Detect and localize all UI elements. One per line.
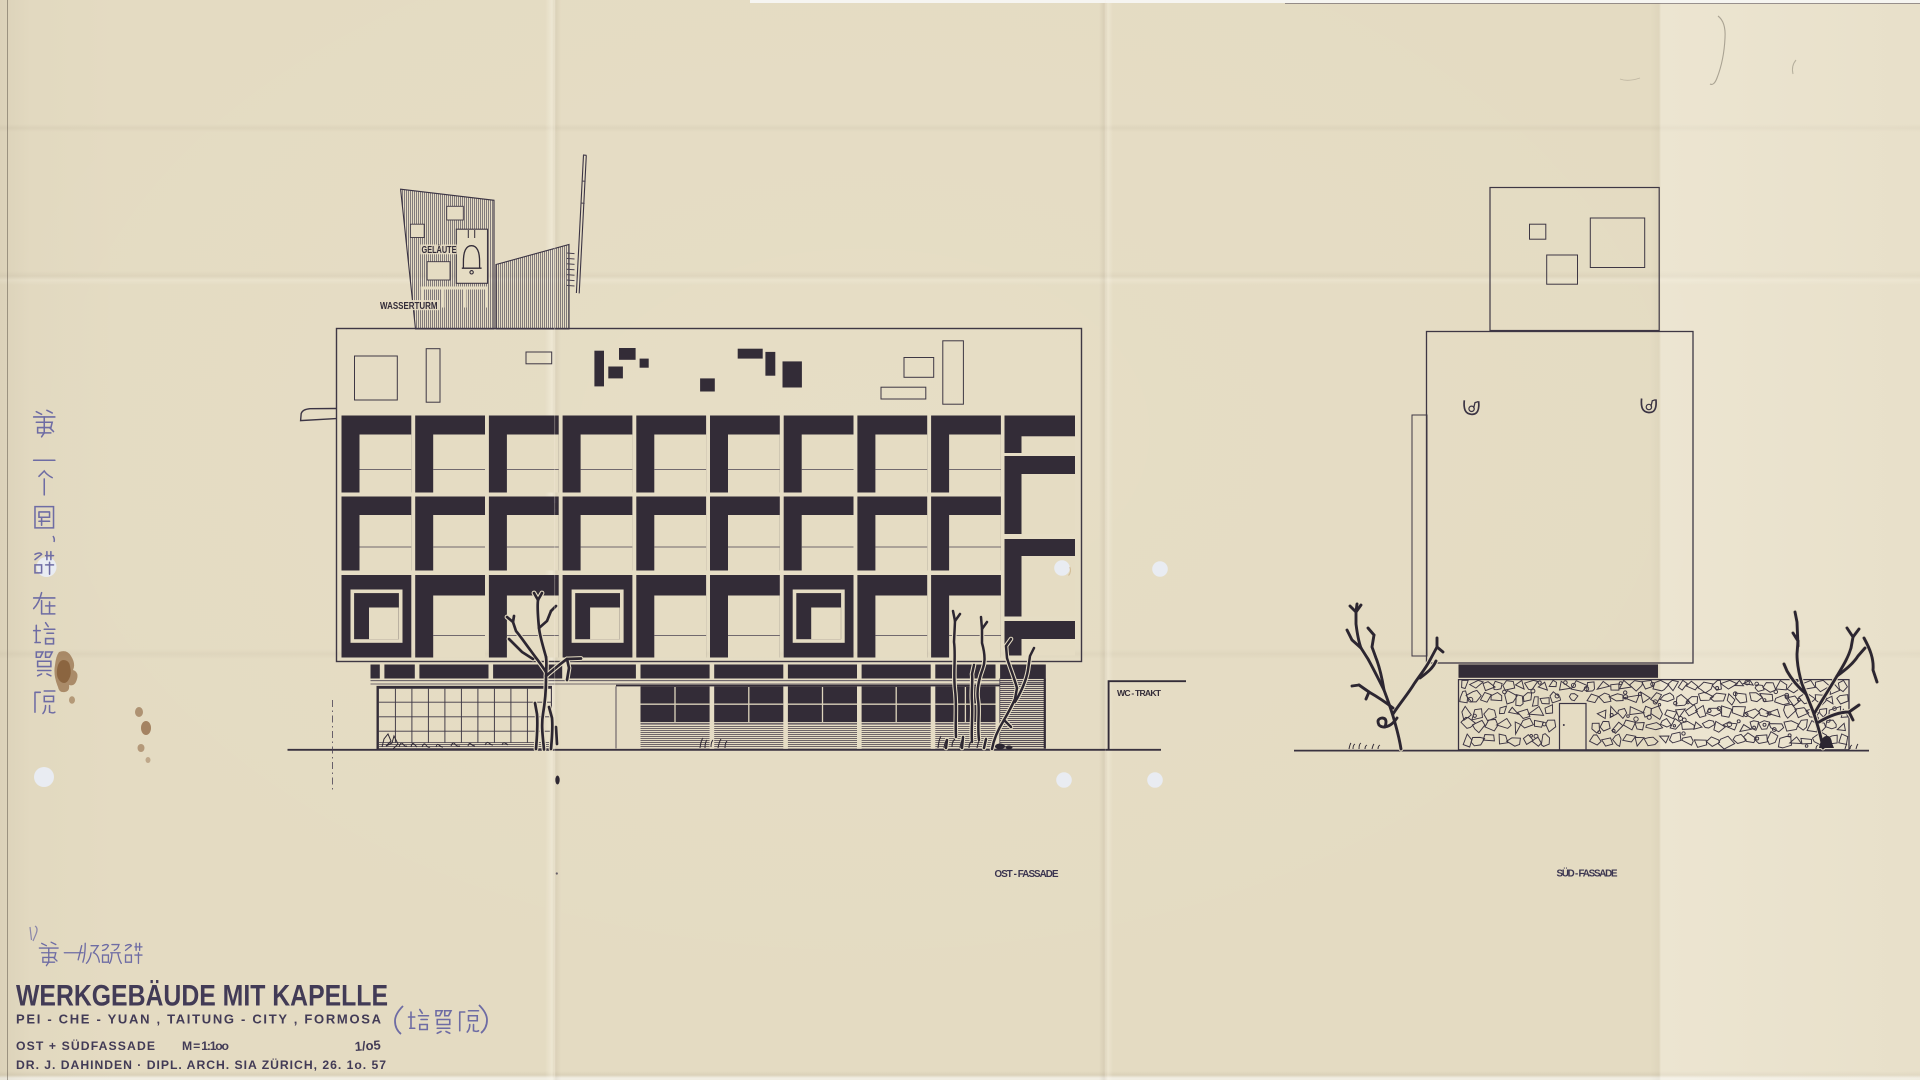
svg-text:WASSERTURM: WASSERTURM bbox=[380, 301, 438, 312]
svg-text:WERKGEBÄUDE MIT KAPELLE: WERKGEBÄUDE MIT KAPELLE bbox=[16, 980, 388, 1013]
svg-text:GELÄUTE: GELÄUTE bbox=[422, 243, 457, 256]
svg-text:DR. J. DAHINDEN · DIPL. ARCH.: DR. J. DAHINDEN · DIPL. ARCH. SIA ZÜRICH… bbox=[16, 1057, 386, 1072]
svg-text:WC - TRAKT: WC - TRAKT bbox=[1117, 688, 1162, 698]
svg-text:PEI - CHE - YUAN , TAITUNG - C: PEI - CHE - YUAN , TAITUNG - CITY , FORM… bbox=[16, 1012, 382, 1027]
svg-text:SÜD - FASSADE: SÜD - FASSADE bbox=[1557, 869, 1618, 880]
svg-text:M = 1:1oo: M = 1:1oo bbox=[182, 1039, 229, 1053]
svg-text:OST - FASSADE: OST - FASSADE bbox=[995, 869, 1059, 880]
svg-text:OST + SÜDFASSADE: OST + SÜDFASSADE bbox=[16, 1038, 155, 1053]
svg-text:1/o5: 1/o5 bbox=[354, 1037, 381, 1054]
